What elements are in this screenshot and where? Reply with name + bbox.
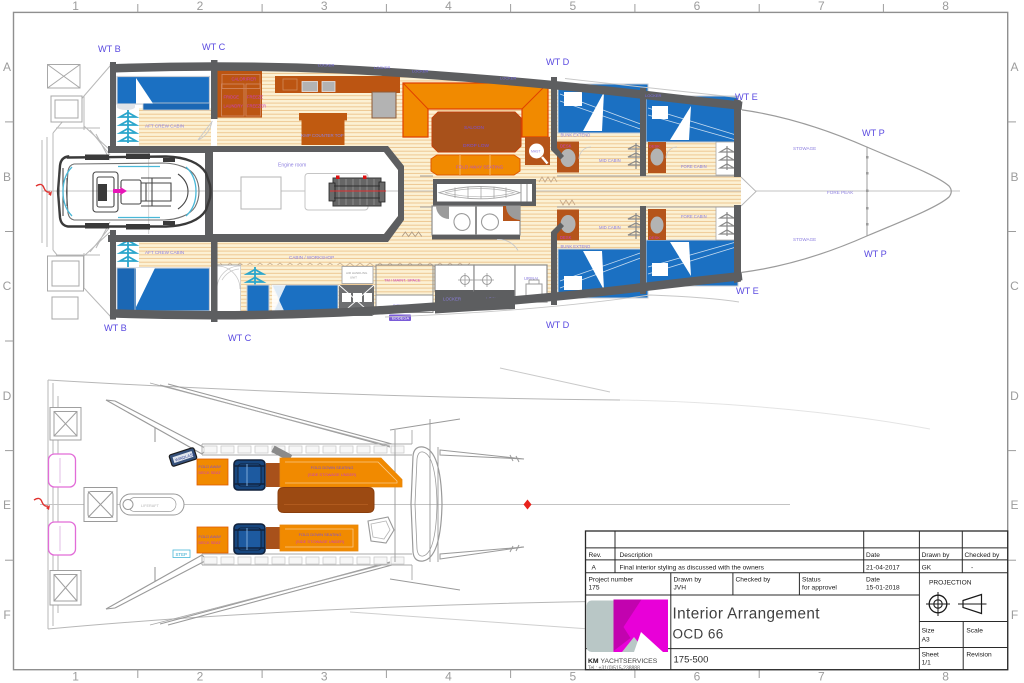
svg-text:A: A (592, 565, 597, 572)
svg-text:Tel : +31(0)515-238888: Tel : +31(0)515-238888 (588, 665, 640, 671)
svg-text:FORE CABIN: FORE CABIN (681, 214, 707, 219)
svg-text:PROJECTION: PROJECTION (929, 580, 972, 587)
svg-text:KM YACHTSERVICES: KM YACHTSERVICES (588, 658, 658, 665)
svg-text:C: C (1010, 279, 1019, 293)
svg-text:TM / MAINT. SPACE: TM / MAINT. SPACE (384, 278, 421, 283)
svg-text:WT C: WT C (228, 333, 252, 343)
svg-text:2: 2 (197, 670, 204, 683)
svg-text:Drawn by: Drawn by (922, 552, 951, 559)
svg-text:STOWAGE: STOWAGE (793, 237, 816, 242)
svg-text:LIFERAFT: LIFERAFT (141, 504, 160, 508)
svg-text:3: 3 (321, 670, 328, 683)
svg-text:5: 5 (569, 0, 576, 13)
svg-text:DROP LOW: DROP LOW (463, 143, 490, 149)
svg-text:Rev.: Rev. (589, 552, 602, 559)
svg-text:Revision: Revision (966, 652, 992, 659)
svg-text:6: 6 (694, 670, 701, 683)
svg-text:3: 3 (321, 0, 328, 13)
svg-text:CALORIFIER: CALORIFIER (232, 77, 257, 82)
svg-text:F: F (1011, 608, 1018, 622)
svg-text:MID CABIN: MID CABIN (599, 225, 621, 230)
svg-text:A: A (3, 60, 11, 74)
svg-text:DESK: DESK (649, 235, 660, 240)
svg-text:Final interior styling as disc: Final interior styling as discussed with… (620, 565, 765, 572)
svg-text:-: - (971, 565, 973, 572)
svg-text:AFT CREW CABIN: AFT CREW CABIN (145, 250, 184, 255)
svg-text:175-500: 175-500 (674, 655, 709, 666)
svg-text:FOLD AWAY: FOLD AWAY (199, 464, 222, 469)
svg-text:Date: Date (866, 577, 880, 584)
svg-text:8: 8 (942, 670, 949, 683)
svg-text:CABIN / WORKSHOP: CABIN / WORKSHOP (289, 255, 334, 260)
svg-text:WT B: WT B (98, 44, 121, 54)
svg-text:STEP: STEP (176, 552, 188, 557)
svg-text:AIR HANDLING: AIR HANDLING (346, 271, 368, 275)
svg-text:E: E (3, 498, 11, 512)
svg-text:5: 5 (569, 670, 576, 683)
svg-text:E: E (1010, 498, 1018, 512)
svg-text:7: 7 (818, 0, 825, 13)
svg-text:8: 8 (942, 0, 949, 13)
svg-text:WT P: WT P (864, 249, 887, 259)
svg-text:KMP COUNTER TOP: KMP COUNTER TOP (301, 133, 344, 138)
svg-text:FREEZE: FREEZE (247, 95, 263, 100)
svg-text:BUNK EXTEND: BUNK EXTEND (561, 133, 591, 138)
svg-text:4: 4 (445, 0, 452, 13)
svg-text:WT B: WT B (104, 323, 127, 333)
svg-text:FOLD DOWN SEATING: FOLD DOWN SEATING (311, 465, 354, 470)
svg-text:OCD 66: OCD 66 (673, 627, 724, 642)
svg-text:LOCKER: LOCKER (374, 65, 391, 70)
svg-text:4: 4 (445, 670, 452, 683)
svg-text:B: B (3, 170, 11, 184)
svg-text:Scale: Scale (966, 628, 983, 635)
svg-text:DESK: DESK (560, 235, 572, 240)
svg-text:175: 175 (589, 585, 600, 592)
svg-text:GK: GK (922, 565, 932, 572)
svg-text:LOCKER: LOCKER (500, 76, 517, 81)
svg-text:WT E: WT E (735, 92, 758, 102)
svg-text:WT D: WT D (546, 57, 570, 67)
svg-text:FORE CABIN: FORE CABIN (681, 164, 707, 169)
svg-text:Checked by: Checked by (965, 552, 1001, 559)
svg-text:1/1: 1/1 (922, 660, 931, 667)
svg-text:WT C: WT C (202, 42, 226, 52)
svg-text:DESK: DESK (649, 144, 660, 149)
svg-text:Size: Size (922, 628, 935, 635)
svg-text:Status: Status (802, 577, 821, 584)
svg-text:WT E: WT E (736, 286, 759, 296)
svg-text:MID CABIN: MID CABIN (599, 158, 621, 163)
svg-text:FREEZER: FREEZER (247, 104, 266, 109)
svg-text:SALOON: SALOON (464, 125, 485, 131)
svg-text:STOWAGE: STOWAGE (793, 146, 816, 151)
svg-text:F: F (3, 608, 10, 622)
svg-text:LAUNDRY: LAUNDRY (224, 104, 244, 109)
svg-text:FOLD AWAY SEATING: FOLD AWAY SEATING (456, 165, 504, 170)
svg-text:LOCKER: LOCKER (645, 93, 662, 98)
svg-text:Checked by: Checked by (736, 577, 772, 584)
svg-text:D: D (3, 389, 12, 403)
svg-text:Drawn by: Drawn by (674, 577, 703, 584)
svg-text:FRIDGE: FRIDGE (224, 95, 240, 100)
svg-text:B: B (1010, 170, 1018, 184)
svg-text:D: D (1010, 389, 1019, 403)
svg-text:Project number: Project number (589, 577, 635, 584)
svg-text:DECK SEAT: DECK SEAT (199, 540, 222, 545)
svg-text:BUNK EXTEND: BUNK EXTEND (561, 244, 591, 249)
svg-text:1: 1 (72, 0, 79, 13)
svg-text:DESK: DESK (560, 144, 572, 149)
svg-text:for approvel: for approvel (802, 585, 837, 592)
svg-text:FOLD DOWN SEATING: FOLD DOWN SEATING (299, 532, 342, 537)
svg-text:WT P: WT P (862, 128, 885, 138)
svg-text:1: 1 (72, 670, 79, 683)
svg-text:(SIDE STOWAGE UNDER): (SIDE STOWAGE UNDER) (296, 539, 345, 544)
svg-text:A: A (1010, 60, 1018, 74)
svg-text:7: 7 (818, 670, 825, 683)
svg-text:Interior Arrangement: Interior Arrangement (673, 606, 821, 623)
svg-text:A3: A3 (922, 637, 930, 644)
svg-text:AFT CREW CABIN: AFT CREW CABIN (145, 124, 184, 129)
svg-text:DECK SEAT: DECK SEAT (199, 470, 222, 475)
svg-text:Engine room: Engine room (278, 163, 306, 169)
svg-text:Sheet: Sheet (922, 652, 939, 659)
svg-text:(SIDE STOWAGE UNDER): (SIDE STOWAGE UNDER) (308, 472, 357, 477)
svg-text:6: 6 (694, 0, 701, 13)
svg-text:FORE PEAK: FORE PEAK (827, 190, 854, 195)
svg-text:WT D: WT D (546, 320, 570, 330)
svg-text:FOLD AWAY: FOLD AWAY (199, 534, 222, 539)
svg-text:MAST: MAST (531, 150, 540, 154)
svg-text:15-01-2018: 15-01-2018 (866, 585, 900, 592)
svg-text:C: C (3, 279, 12, 293)
svg-text:LOCKER: LOCKER (412, 69, 429, 74)
svg-text:JVH: JVH (674, 585, 687, 592)
svg-text:21-04-2017: 21-04-2017 (866, 565, 900, 572)
svg-text:Description: Description (620, 552, 653, 559)
svg-text:UNIT: UNIT (350, 276, 357, 280)
svg-text:Date: Date (866, 552, 880, 559)
svg-text:2: 2 (197, 0, 204, 13)
svg-text:LOCKER: LOCKER (318, 63, 335, 68)
